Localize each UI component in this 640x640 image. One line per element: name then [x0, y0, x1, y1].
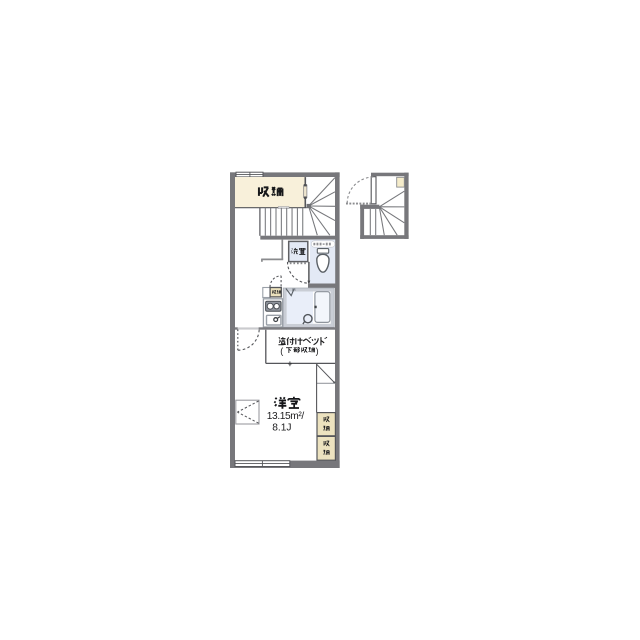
svg-text:13.15m²/: 13.15m²/: [267, 411, 305, 422]
svg-text:(: (: [280, 346, 283, 356]
svg-text:): ): [316, 346, 319, 356]
svg-text:8.1J: 8.1J: [272, 422, 291, 433]
